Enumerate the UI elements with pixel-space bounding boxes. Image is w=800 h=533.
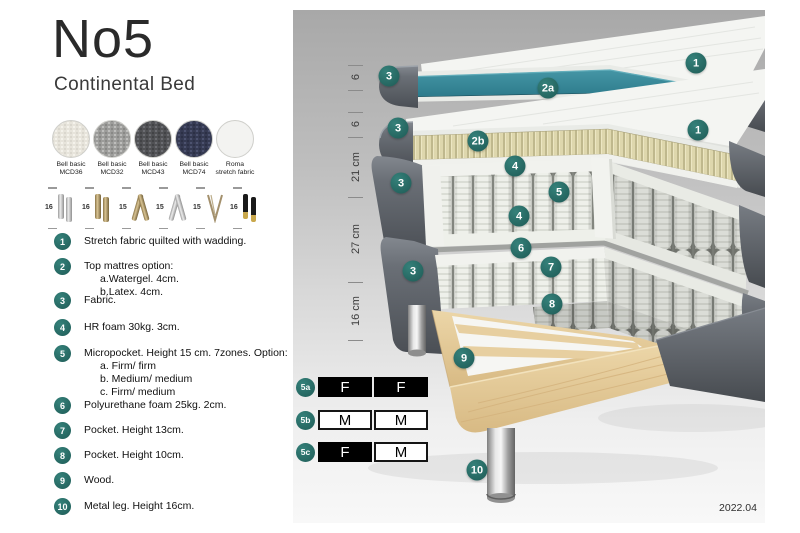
diagram-callout: 3	[388, 118, 409, 139]
diagram-callout: 4	[509, 206, 530, 227]
leg-option: 15	[155, 185, 192, 231]
measure-label: 6	[350, 74, 362, 80]
spec-number-badge: 8	[54, 447, 71, 464]
fabric-swatch-circle	[93, 120, 131, 158]
leg-cylinder-black-gold-icon	[240, 193, 264, 223]
measure-label: 6	[350, 121, 362, 127]
leg-hairpin-icon	[203, 193, 227, 223]
spec-item-5: 5 Micropocket. Height 15 cm. 7zones. Opt…	[54, 345, 288, 399]
diagram-callout: 3	[379, 66, 400, 87]
spec-text: Pocket. Height 13cm.	[84, 422, 184, 437]
measure-label: 16 cm	[350, 296, 362, 326]
spec-text: Micropocket. Height 15 cm. 7zones. Optio…	[84, 345, 288, 399]
fabric-swatch-circle	[216, 120, 254, 158]
spec-item-1: 1 Stretch fabric quilted with wadding.	[54, 233, 246, 250]
diagram-panel: 6 6 21 cm 27 cm 16 cm 1 1 2a 2b 3 3 3 3 …	[293, 10, 765, 523]
legend-column: No5 Continental Bed Bell basicMCD36 Bell…	[0, 0, 293, 533]
diagram-callout: 8	[542, 294, 563, 315]
firmness-badge: 5b	[296, 411, 315, 430]
firmness-row-5c: 5c F M	[296, 442, 428, 462]
leg-twist-silver-icon	[166, 193, 190, 223]
fabric-swatch: Bell basicMCD43	[133, 120, 173, 177]
ruler-tick	[348, 137, 363, 138]
spec-text: HR foam 30kg. 3cm.	[84, 319, 180, 334]
diagram-callout: 7	[541, 257, 562, 278]
diagram-callout: 2b	[468, 131, 489, 152]
spec-item-10: 10 Metal leg. Height 16cm.	[54, 498, 194, 515]
spec-number-badge: 10	[54, 498, 71, 515]
leg-cylinder-brass-icon	[92, 193, 116, 223]
diagram-callout: 4	[505, 156, 526, 177]
spec-number-badge: 3	[54, 292, 71, 309]
spec-text: Polyurethane foam 25kg. 2cm.	[84, 397, 226, 412]
spec-item-9: 9 Wood.	[54, 472, 114, 489]
spec-item-6: 6 Polyurethane foam 25kg. 2cm.	[54, 397, 226, 414]
diagram-callout: 3	[403, 261, 424, 282]
diagram-callout: 3	[391, 173, 412, 194]
spec-number-badge: 7	[54, 422, 71, 439]
firmness-cell: M	[374, 442, 428, 462]
spec-number-badge: 5	[54, 345, 71, 362]
ruler-tick	[348, 282, 363, 283]
ruler-tick	[348, 112, 363, 113]
diagram-callout: 10	[467, 460, 488, 481]
fabric-swatch: Bell basicMCD36	[51, 120, 91, 177]
spec-text: Wood.	[84, 472, 114, 487]
leg-option: 15	[192, 185, 229, 231]
leg-twist-gold-icon	[129, 193, 153, 223]
firmness-row-5a: 5a F F	[296, 377, 428, 397]
firmness-cell: F	[318, 377, 372, 397]
firmness-cell: F	[318, 442, 372, 462]
diagram-callout: 1	[688, 120, 709, 141]
ruler-tick	[348, 340, 363, 341]
leg-option: 16	[44, 185, 81, 231]
fabric-swatch-circle	[52, 120, 90, 158]
diagram-callout: 9	[454, 348, 475, 369]
ruler-tick	[348, 197, 363, 198]
spec-item-4: 4 HR foam 30kg. 3cm.	[54, 319, 180, 336]
spec-number-badge: 1	[54, 233, 71, 250]
firmness-badge: 5a	[296, 378, 315, 397]
spec-item-3: 3 Fabric.	[54, 292, 116, 309]
spec-number-badge: 9	[54, 472, 71, 489]
ruler-tick	[348, 65, 363, 66]
firmness-cell: M	[374, 410, 428, 430]
revision-date: 2022.04	[719, 502, 757, 514]
fabric-swatch: Bell basicMCD32	[92, 120, 132, 177]
spec-text: Metal leg. Height 16cm.	[84, 498, 194, 513]
fabric-swatch: Romastretch fabric	[215, 120, 255, 177]
spec-text: Stretch fabric quilted with wadding.	[84, 233, 246, 248]
firmness-cell: M	[318, 410, 372, 430]
leg-cylinder-silver-icon	[55, 193, 79, 223]
spec-number-badge: 4	[54, 319, 71, 336]
fabric-swatches: Bell basicMCD36 Bell basicMCD32 Bell bas…	[51, 120, 255, 177]
diagram-callout: 5	[549, 182, 570, 203]
page-title: No5	[52, 12, 154, 66]
spec-item-7: 7 Pocket. Height 13cm.	[54, 422, 184, 439]
spec-text: Fabric.	[84, 292, 116, 307]
fabric-swatch-circle	[175, 120, 213, 158]
fabric-swatch-circle	[134, 120, 172, 158]
spec-sheet: { "title": {"main": "No5", "subtitle": "…	[0, 0, 800, 533]
leg-option: 16	[229, 185, 266, 231]
firmness-row-5b: 5b M M	[296, 410, 428, 430]
measure-label: 27 cm	[350, 224, 362, 254]
spec-text: Pocket. Height 10cm.	[84, 447, 184, 462]
diagram-callout: 6	[511, 238, 532, 259]
spec-item-8: 8 Pocket. Height 10cm.	[54, 447, 184, 464]
fabric-swatch: Bell basicMCD74	[174, 120, 214, 177]
diagram-callout: 2a	[538, 78, 559, 99]
firmness-badge: 5c	[296, 443, 315, 462]
measure-label: 21 cm	[350, 152, 362, 182]
spec-number-badge: 2	[54, 258, 71, 275]
page-subtitle: Continental Bed	[54, 74, 195, 96]
ruler-tick	[348, 90, 363, 91]
firmness-cell: F	[374, 377, 428, 397]
spec-number-badge: 6	[54, 397, 71, 414]
leg-option: 15	[118, 185, 155, 231]
leg-options: 16 16 15 15 15 16	[44, 185, 266, 231]
diagram-callout: 1	[686, 53, 707, 74]
leg-option: 16	[81, 185, 118, 231]
